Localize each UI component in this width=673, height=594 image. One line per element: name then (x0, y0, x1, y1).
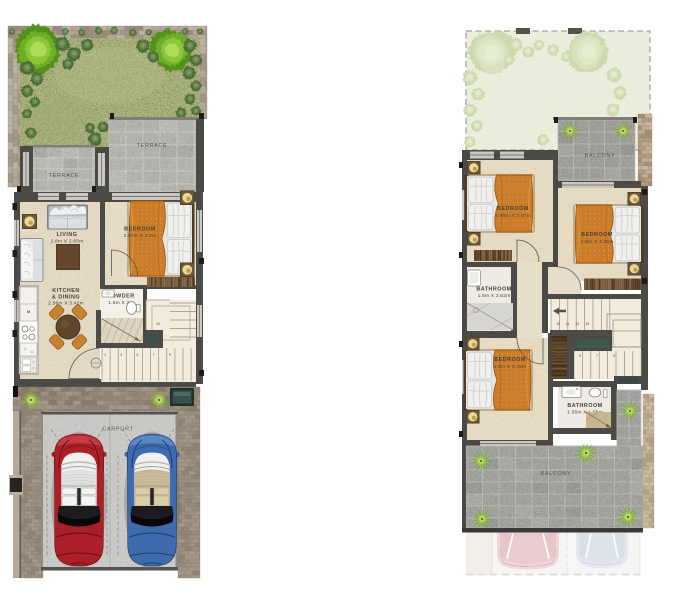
svg-text:13: 13 (585, 322, 589, 326)
svg-text:2.9m X 3.45m: 2.9m X 3.45m (494, 364, 527, 370)
svg-text:TERRACE: TERRACE (137, 143, 168, 149)
svg-text:TERRACE: TERRACE (49, 173, 80, 179)
svg-text:2.8m X 3.35m: 2.8m X 3.35m (581, 239, 614, 245)
svg-text:BEDROOM: BEDROOM (124, 227, 156, 233)
svg-text:M: M (27, 310, 30, 314)
svg-text:KITCHEN: KITCHEN (52, 288, 79, 294)
svg-text:BEDROOM: BEDROOM (494, 357, 526, 363)
svg-text:10: 10 (556, 322, 560, 326)
svg-text:& DINING: & DINING (52, 295, 80, 301)
svg-text:BALCONY: BALCONY (541, 471, 572, 477)
svg-text:BEDROOM: BEDROOM (497, 206, 529, 212)
svg-text:12: 12 (576, 322, 580, 326)
svg-text:9: 9 (613, 354, 615, 358)
svg-text:5: 5 (579, 354, 581, 358)
svg-text:CARPORT: CARPORT (102, 427, 133, 433)
svg-text:2.87m X 3.2m: 2.87m X 3.2m (124, 233, 157, 239)
svg-text:LIVING: LIVING (57, 232, 78, 238)
svg-text:BEDROOM: BEDROOM (581, 232, 613, 238)
svg-text:1: 1 (104, 353, 106, 357)
svg-text:11: 11 (566, 322, 570, 326)
svg-text:5: 5 (136, 353, 138, 357)
svg-text:BALCONY: BALCONY (585, 153, 616, 159)
svg-text:7: 7 (153, 353, 155, 357)
svg-text:2.56m X 3.42m: 2.56m X 3.42m (48, 301, 84, 307)
svg-text:7: 7 (596, 354, 598, 358)
svg-text:9: 9 (169, 353, 171, 357)
svg-text:10: 10 (156, 322, 160, 326)
svg-text:BATHROOM: BATHROOM (476, 287, 511, 293)
svg-text:2.96m X 3.47m: 2.96m X 3.47m (495, 213, 531, 219)
svg-text:3: 3 (120, 353, 122, 357)
svg-text:BATHROOM: BATHROOM (567, 403, 602, 409)
svg-text:2.8m X 2.65m: 2.8m X 2.65m (51, 239, 84, 245)
svg-text:1.5m X 2.62m: 1.5m X 2.62m (478, 293, 511, 299)
